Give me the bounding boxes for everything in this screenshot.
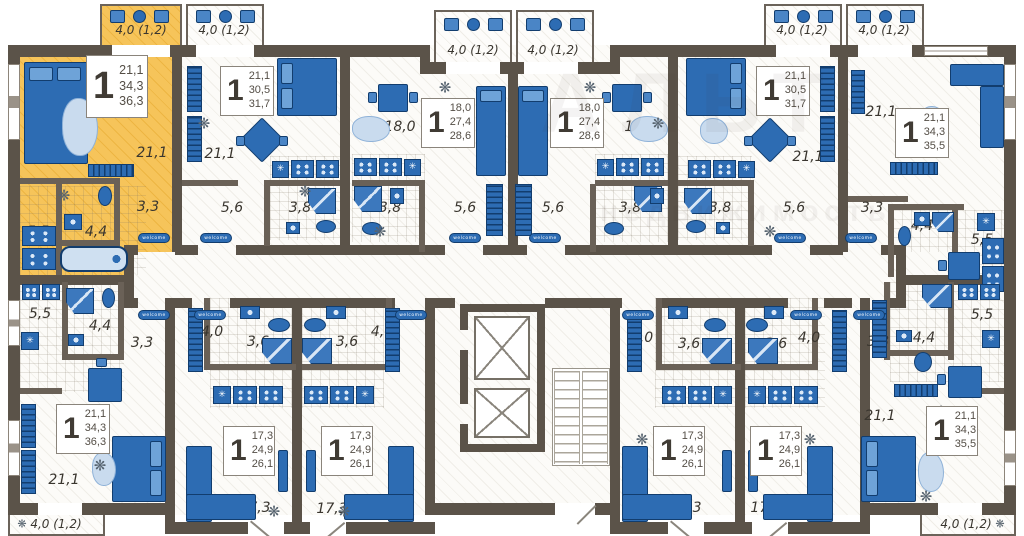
dresser — [88, 164, 134, 177]
balcony-chair — [900, 10, 915, 23]
washing-machine-icon: ✳ — [982, 218, 990, 227]
chair — [938, 260, 947, 271]
plant-icon: ❋ — [995, 519, 1004, 530]
rooms-count: 1 — [660, 437, 677, 466]
room-area-label: 4,0 — [201, 324, 223, 340]
kitchen-sink — [291, 160, 314, 178]
plant-icon: ❋ — [804, 433, 817, 448]
tv-stand — [278, 450, 288, 492]
apartment-info-card: 1 18,027,428,6 — [421, 98, 475, 148]
washing-machine-icon: ✳ — [743, 165, 751, 174]
balcony-chair — [110, 10, 125, 23]
doormat: welcome — [449, 233, 481, 243]
wall — [460, 304, 468, 330]
room-area-label: 3,8 — [289, 200, 311, 216]
wall — [460, 350, 468, 404]
balcony-door-gap — [38, 503, 82, 515]
doormat: welcome — [622, 310, 654, 320]
wall — [20, 178, 120, 184]
rooms-count: 1 — [902, 119, 919, 148]
chair — [236, 136, 245, 146]
washing-machine: ✳ — [748, 386, 766, 404]
wall — [118, 282, 124, 360]
washing-machine: ✳ — [738, 161, 755, 178]
wall — [175, 245, 198, 255]
window — [8, 300, 20, 346]
areas: 17,324,926,1 — [252, 430, 273, 471]
kitchen-hob — [316, 160, 339, 178]
areas: 17,324,926,1 — [350, 430, 371, 471]
areas: 21,134,336,3 — [119, 63, 143, 110]
rooms-count: 1 — [230, 437, 247, 466]
room-area-label: 3,3 — [137, 199, 159, 215]
room-area-label: 5,6 — [221, 200, 243, 216]
bathroom-sink — [914, 212, 930, 226]
wall — [460, 444, 545, 452]
kitchen-sink — [713, 160, 736, 178]
balcony-chair — [240, 10, 255, 23]
table — [948, 252, 980, 280]
sofa — [622, 494, 692, 520]
tv-stand — [306, 450, 316, 492]
dresser — [894, 384, 938, 397]
plant-icon: ❋ — [338, 505, 351, 520]
bathroom-sink — [64, 214, 82, 230]
wall — [172, 45, 182, 252]
wall — [8, 503, 175, 515]
chair — [368, 92, 377, 103]
wall — [745, 364, 818, 370]
kitchen-sink — [259, 386, 283, 404]
pillow — [281, 63, 293, 84]
kitchen-sink — [22, 284, 40, 300]
kitchen-sink — [616, 158, 639, 176]
bathroom-sink — [240, 306, 260, 319]
balcony-door-gap — [446, 62, 500, 74]
doormat-label: welcome — [778, 236, 802, 241]
kitchen-hob — [42, 284, 60, 300]
balcony-area-label: 4,0 (1,2) — [940, 517, 991, 531]
doormat-label: welcome — [204, 236, 228, 241]
kitchen-sink — [379, 158, 402, 176]
wall — [545, 298, 622, 308]
balcony-table — [549, 18, 562, 31]
sofa — [763, 494, 833, 520]
plant-icon: ❋ — [268, 505, 281, 520]
elevator — [474, 316, 530, 380]
areas: 17,324,926,1 — [779, 430, 800, 471]
balcony-area-label: 4,0 (1,2) — [115, 23, 166, 37]
balcony-chair — [444, 18, 459, 31]
washing-machine: ✳ — [356, 386, 374, 404]
stair-flight — [582, 371, 608, 464]
bathroom-sink — [68, 334, 84, 346]
apartment-info-card: 1 17,324,926,1 — [653, 426, 705, 476]
sofa — [344, 494, 414, 520]
toilet — [914, 352, 932, 372]
table — [88, 368, 122, 402]
toilet — [746, 318, 768, 332]
wall — [425, 298, 435, 515]
washing-machine-icon: ✳ — [26, 337, 34, 346]
wall — [824, 298, 852, 308]
apartment-info-card: 1 21,134,336,3 — [86, 55, 148, 118]
rug — [352, 116, 390, 142]
bathroom-sink — [668, 306, 688, 319]
elevator — [474, 388, 530, 438]
balcony-chair — [154, 10, 169, 23]
balcony-area-label: 4,0 (1,2) — [30, 517, 81, 531]
window — [1004, 430, 1016, 486]
doormat: welcome — [194, 310, 226, 320]
room-area-label: 4,4 — [89, 318, 111, 334]
balcony-chair — [856, 10, 871, 23]
bathroom-sink — [390, 188, 404, 204]
balcony-table — [219, 10, 232, 23]
wardrobe — [486, 184, 503, 236]
areas: 21,134,335,5 — [955, 410, 976, 451]
wall — [735, 298, 745, 534]
bathroom-sink — [764, 306, 784, 319]
washing-machine: ✳ — [977, 213, 995, 231]
wardrobe — [21, 404, 36, 448]
toilet — [316, 220, 336, 233]
washing-machine: ✳ — [714, 386, 732, 404]
room-area-label: 21,1 — [864, 408, 895, 424]
balcony-table — [879, 10, 892, 23]
washing-machine: ✳ — [404, 159, 421, 176]
toilet — [898, 226, 911, 246]
doormat-label: welcome — [142, 313, 166, 318]
toilet — [704, 318, 726, 332]
stair-flight — [554, 371, 580, 464]
balcony-door-gap — [858, 45, 912, 57]
areas: 21,134,335,5 — [924, 112, 945, 153]
pillow — [480, 90, 502, 102]
kitchen-hob — [233, 386, 257, 404]
wall — [134, 245, 138, 255]
room-area-label: 21,1 — [48, 472, 79, 488]
kitchen-hob — [980, 284, 1000, 300]
kitchen-hob — [662, 386, 686, 404]
kitchen-sink — [768, 386, 792, 404]
wall — [114, 184, 120, 244]
wall — [595, 180, 668, 186]
window — [924, 46, 988, 56]
kitchen-hob — [354, 158, 377, 176]
toilet — [268, 318, 290, 332]
wall — [302, 364, 392, 370]
rug — [918, 452, 944, 492]
room-area-label: 3,3 — [131, 335, 153, 351]
rooms-count: 1 — [328, 437, 345, 466]
wall — [20, 388, 62, 394]
apartment-info-card: 1 21,130,531,7 — [220, 66, 274, 116]
dresser — [890, 162, 938, 175]
room-area-label: 4,4 — [913, 330, 935, 346]
washing-machine: ✳ — [597, 159, 614, 176]
washing-machine: ✳ — [213, 386, 231, 404]
balcony-door-gap — [938, 503, 982, 515]
rooms-count: 1 — [757, 437, 774, 466]
floor-plan: 1 21,134,336,3 1 21,130,531,7 1 18,027,4… — [0, 0, 1024, 536]
washing-machine: ✳ — [982, 330, 1000, 348]
balcony-chair — [818, 10, 833, 23]
wall — [610, 298, 620, 534]
areas: 21,134,336,3 — [85, 408, 106, 449]
room-area-label: 21,1 — [136, 145, 167, 161]
kitchen-hob — [22, 248, 56, 270]
washing-machine-icon: ✳ — [753, 391, 761, 400]
wall — [292, 298, 302, 534]
wall — [236, 245, 445, 255]
table — [378, 84, 408, 112]
wall — [656, 298, 662, 368]
wardrobe — [515, 184, 532, 236]
doormat: welcome — [790, 310, 822, 320]
chair — [279, 136, 288, 146]
pillow — [150, 441, 162, 467]
room-area-label: 3,6 — [678, 336, 700, 352]
wall — [419, 184, 425, 252]
doormat: welcome — [395, 310, 427, 320]
pillow — [57, 67, 81, 81]
toilet — [98, 186, 112, 206]
sofa — [186, 494, 256, 520]
balcony-chair — [774, 10, 789, 23]
kitchen-hob — [330, 386, 354, 404]
wall — [165, 298, 175, 534]
balcony-table — [467, 18, 480, 31]
room-area-label: 5,5 — [971, 307, 993, 323]
balcony-door-gap — [196, 45, 254, 57]
room-area-label: 4,4 — [85, 224, 107, 240]
washing-machine-icon: ✳ — [602, 163, 610, 172]
apartment-info-card: 1 21,134,336,3 — [56, 404, 110, 454]
balcony-chair — [196, 10, 211, 23]
doormat: welcome — [529, 233, 561, 243]
wall — [460, 424, 468, 452]
tv-stand — [722, 450, 732, 492]
plant-icon: ❋ — [920, 490, 933, 505]
room-area-label: 3,6 — [336, 334, 358, 350]
bathtub — [60, 246, 128, 272]
washing-machine-icon: ✳ — [719, 391, 727, 400]
wall — [264, 186, 270, 246]
toilet — [304, 318, 326, 332]
balcony-area-label: 4,0 (1,2) — [198, 23, 249, 37]
wall — [340, 45, 350, 252]
plant-icon: ❋ — [58, 189, 71, 204]
wardrobe — [21, 450, 36, 494]
doormat: welcome — [853, 310, 885, 320]
washing-machine-icon: ✳ — [361, 391, 369, 400]
plant-icon: ❋ — [17, 519, 26, 530]
doormat: welcome — [138, 310, 170, 320]
wardrobe — [187, 66, 202, 112]
plant-icon: ❋ — [636, 433, 649, 448]
chair — [937, 374, 946, 385]
washing-machine-icon: ✳ — [409, 163, 417, 172]
apartment-info-card: 1 21,134,335,5 — [895, 108, 949, 158]
bathroom-sink — [286, 222, 300, 234]
washing-machine-icon: ✳ — [277, 165, 285, 174]
wall — [420, 45, 430, 74]
wall — [204, 364, 296, 370]
window — [8, 64, 20, 140]
rooms-count: 1 — [93, 68, 114, 104]
doormat-label: welcome — [142, 236, 166, 241]
plant-icon: ❋ — [439, 81, 452, 96]
wall — [175, 522, 435, 534]
rooms-count: 1 — [428, 109, 445, 138]
kitchen-sink — [958, 284, 978, 300]
room-area-label: 5,5 — [29, 306, 51, 322]
wardrobe — [872, 300, 887, 358]
wall — [590, 184, 596, 252]
plant-icon: ❋ — [374, 225, 387, 240]
washing-machine-icon: ✳ — [218, 391, 226, 400]
wall — [134, 298, 138, 308]
kitchen-sink — [304, 386, 328, 404]
apartment-info-card: 1 17,324,926,1 — [223, 426, 275, 476]
areas: 17,324,926,1 — [682, 430, 703, 471]
doormat: welcome — [774, 233, 806, 243]
toilet — [102, 288, 115, 308]
wall — [656, 364, 741, 370]
washing-machine-icon: ✳ — [987, 335, 995, 344]
watermark: АЛЬТ — [540, 55, 844, 152]
balcony-chair — [488, 18, 503, 31]
wall — [460, 304, 545, 312]
sofa — [980, 86, 1004, 148]
doormat-label: welcome — [533, 236, 557, 241]
staircase — [552, 368, 610, 466]
wall — [678, 180, 754, 186]
doormat-label: welcome — [198, 313, 222, 318]
doormat-label: welcome — [794, 313, 818, 318]
plant-icon: ❋ — [198, 117, 211, 132]
wall — [483, 245, 527, 255]
plant-icon: ❋ — [94, 459, 107, 474]
doormat-label: welcome — [453, 236, 477, 241]
pillow — [866, 470, 878, 496]
room-area-label: 5,6 — [454, 200, 476, 216]
doormat: welcome — [845, 233, 877, 243]
wall — [810, 245, 843, 255]
wall — [182, 180, 238, 186]
apartment-info-card: 1 21,134,335,5 — [926, 406, 978, 456]
wall — [352, 180, 425, 186]
wall — [428, 298, 455, 308]
areas: 18,027,428,6 — [450, 102, 471, 143]
washing-machine: ✳ — [21, 332, 39, 350]
kitchen-sink — [688, 386, 712, 404]
kitchen-hob — [688, 160, 711, 178]
room-area-label: 5,6 — [542, 200, 564, 216]
bathroom-sink — [326, 306, 346, 319]
chair — [96, 358, 107, 367]
balcony-area-label: 4,0 (1,2) — [776, 23, 827, 37]
pillow — [29, 67, 53, 81]
bathroom-sink — [896, 330, 912, 342]
wall — [565, 245, 772, 255]
wardrobe — [832, 310, 847, 372]
window — [8, 420, 20, 476]
balcony-area-label: 4,0 (1,2) — [858, 23, 909, 37]
chair — [409, 92, 418, 103]
balcony-chair — [526, 18, 541, 31]
table — [948, 366, 982, 398]
room-area-label: 21,1 — [865, 104, 896, 120]
doormat-label: welcome — [626, 313, 650, 318]
pillow — [866, 441, 878, 467]
watermark: недвижимость — [600, 195, 892, 229]
washing-machine: ✳ — [272, 161, 289, 178]
balcony-area-label: 4,0 (1,2) — [447, 43, 498, 57]
apartment-info-card: 1 17,324,926,1 — [750, 426, 802, 476]
kitchen-hob — [794, 386, 818, 404]
balcony-table — [133, 10, 146, 23]
balcony-table — [797, 10, 810, 23]
rooms-count: 1 — [933, 417, 950, 446]
wall — [175, 298, 192, 308]
room-area-label: 4,0 — [798, 330, 820, 346]
kitchen-hob — [641, 158, 664, 176]
sofa — [950, 64, 1004, 86]
room-area-label: 21,1 — [204, 146, 235, 162]
pillow — [281, 88, 293, 109]
wardrobe — [851, 70, 865, 114]
areas: 21,130,531,7 — [249, 70, 270, 111]
doormat: welcome — [200, 233, 232, 243]
pillow — [150, 470, 162, 496]
apartment-info-card: 1 17,324,926,1 — [321, 426, 373, 476]
wall — [537, 304, 545, 452]
plant-icon: ❋ — [299, 185, 312, 200]
doormat: welcome — [138, 233, 170, 243]
rooms-count: 1 — [227, 77, 244, 106]
kitchen-sink — [22, 226, 56, 246]
balcony-chair — [570, 18, 585, 31]
wall — [62, 354, 124, 360]
exit-door-gap — [555, 503, 595, 515]
doormat-label: welcome — [849, 236, 873, 241]
doormat-label: welcome — [399, 313, 423, 318]
kitchen-sink — [982, 238, 1004, 264]
doormat-label: welcome — [857, 313, 881, 318]
rooms-count: 1 — [63, 415, 80, 444]
window — [1004, 64, 1016, 140]
